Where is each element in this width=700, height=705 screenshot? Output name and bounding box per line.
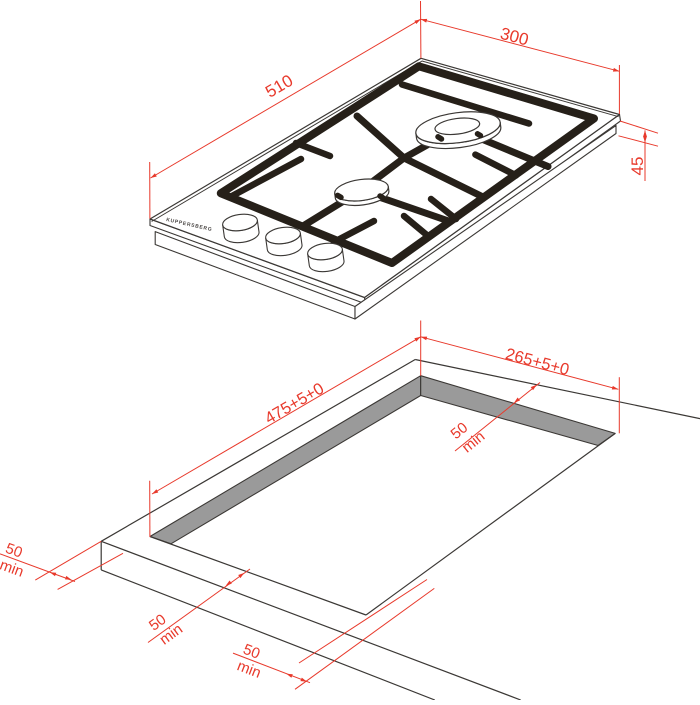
svg-text:45: 45: [628, 157, 647, 176]
